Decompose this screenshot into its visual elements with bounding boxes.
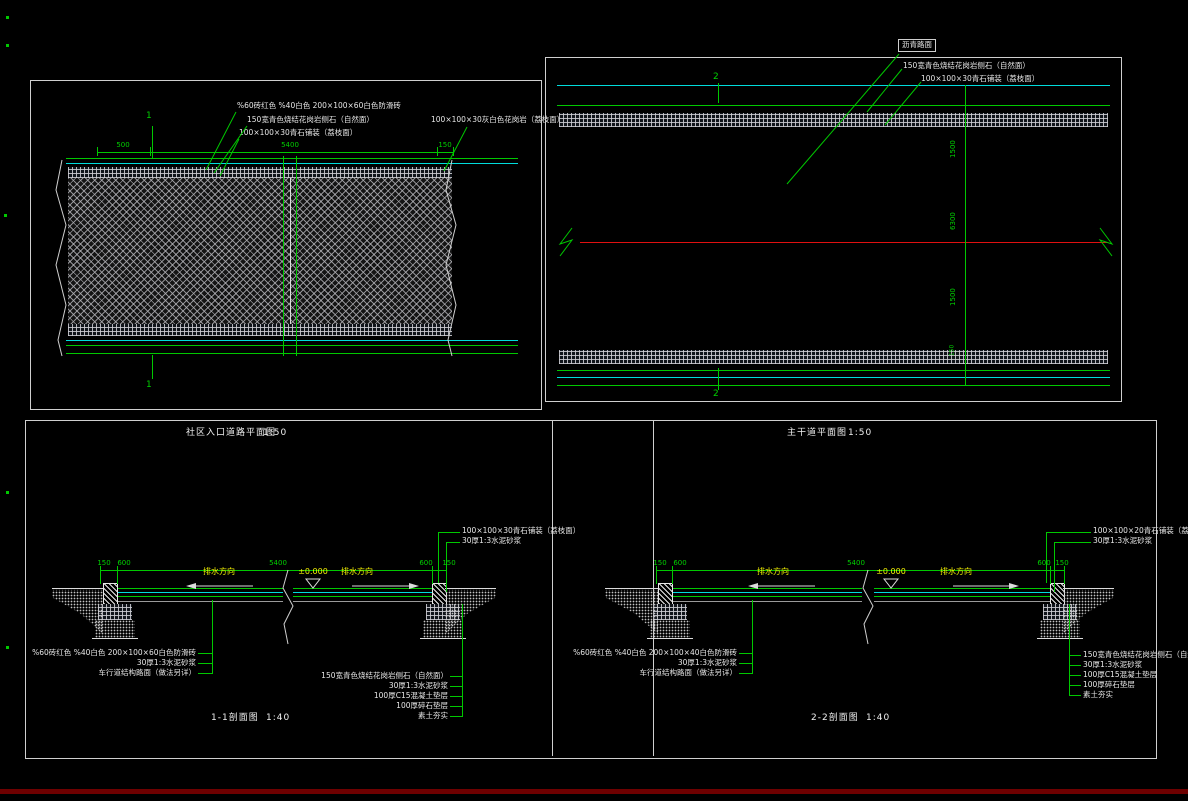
leader-line [1069, 665, 1081, 666]
dim-label: 150 [1055, 559, 1068, 567]
surface-line [293, 588, 432, 589]
material-label: 素土夯实 [1083, 691, 1113, 700]
surface-line [293, 596, 432, 597]
material-label: 100厚C15混凝土垫层 [1083, 671, 1157, 680]
leader-line [438, 532, 460, 533]
leader-line [1069, 604, 1070, 696]
curb-concrete-bed [653, 604, 687, 620]
structure-line [874, 601, 1050, 602]
surface-line [874, 588, 1050, 589]
material-label: 素土夯实 [418, 712, 448, 721]
road-edge-line [557, 370, 1110, 371]
dim-tick [97, 147, 98, 156]
joint-line [290, 178, 291, 324]
road-edge-line [66, 158, 518, 159]
dim-label: 5400 [847, 559, 865, 567]
surface-line [672, 588, 862, 589]
material-label: 100×100×30青石铺装（荔枝面） [239, 129, 357, 138]
joint-line [283, 156, 284, 356]
material-label: 100厚碎石垫层 [1083, 681, 1135, 690]
curb-stone [1050, 583, 1065, 605]
artifact-dot [6, 646, 9, 649]
section-title: 1-1剖面图 [211, 713, 259, 723]
dim-label: 5400 [281, 141, 299, 149]
flow-direction-label: 排水方向 [757, 567, 789, 576]
dim-label: 150 [97, 559, 110, 567]
leader-line [739, 653, 752, 654]
section-cut-tick [152, 126, 153, 158]
frame-divider [552, 421, 553, 756]
dim-tick [656, 566, 657, 584]
leader-line [1069, 695, 1081, 696]
road-edge-line [66, 163, 518, 164]
dim-tick [1050, 566, 1051, 584]
road-edge-line [66, 345, 518, 346]
leader-line [450, 706, 462, 707]
section-cut-tick [718, 368, 719, 390]
dim-tick [117, 566, 118, 584]
plan-scale: 1:50 [263, 428, 287, 438]
dim-label: 5400 [269, 559, 287, 567]
leader-line [450, 686, 462, 687]
joint-line [296, 156, 297, 356]
dim-tick [100, 566, 101, 584]
dim-tick [672, 566, 673, 584]
leader-line [1054, 542, 1091, 543]
ground-line [52, 588, 103, 589]
dim-label: 6300 [949, 204, 957, 238]
dim-label: 600 [117, 559, 130, 567]
section-cut-tick [152, 355, 153, 379]
section-mark-label: 1 [146, 111, 152, 121]
plan-scale: 1:50 [848, 428, 872, 438]
dim-label: 1500 [949, 280, 957, 314]
section-mark-label: 2 [713, 389, 719, 399]
material-label: 30厚1:3水泥砂浆 [678, 659, 737, 668]
cad-drawing-canvas[interactable]: 500 5400 150 1 1 %60砖红色 %40白色 200×100×60… [0, 0, 1188, 801]
level-label: ±0.000 [298, 567, 328, 576]
leader-line [450, 716, 462, 717]
material-label: 150宽青色烧结花岗岩侧石（自然面） [247, 116, 374, 125]
material-label: 100×100×30青石铺装（荔枝面） [921, 75, 1039, 84]
dim-label: 600 [419, 559, 432, 567]
section-mark-label: 2 [713, 72, 719, 82]
section-cut-tick [718, 83, 719, 103]
material-label: 100×100×20青石铺装（荔枝面） [1093, 527, 1188, 536]
material-label: %60砖红色 %40白色 200×100×40白色防滑砖 [573, 649, 737, 658]
flow-direction-label: 排水方向 [341, 567, 373, 576]
leader-line [1054, 542, 1055, 592]
structure-line [672, 601, 862, 602]
level-label: ±0.000 [876, 567, 906, 576]
dim-label: 150 [442, 559, 455, 567]
surface-line [117, 588, 283, 589]
road-edge-line [557, 377, 1110, 378]
leader-line [1069, 675, 1081, 676]
material-label: %60砖红色 %40白色 200×100×60白色防滑砖 [32, 649, 196, 658]
curb-stone [103, 583, 118, 605]
dim-tick [1064, 566, 1065, 584]
material-label: 100×100×30青石铺装（荔枝面） [462, 527, 580, 536]
ground-line [605, 588, 658, 589]
dimension-line [656, 570, 1064, 571]
leader-line [438, 532, 439, 583]
section-mark-label: 1 [146, 380, 152, 390]
dim-label: 150 [438, 141, 451, 149]
surface-line [117, 592, 283, 593]
leader-line [1046, 532, 1047, 583]
leader-line [446, 542, 447, 592]
leader-line [1069, 655, 1081, 656]
edge-paving-band [68, 167, 452, 178]
leader-line [450, 676, 462, 677]
material-label: 30厚1:3水泥砂浆 [137, 659, 196, 668]
dimension-line [100, 570, 446, 571]
surface-line [874, 592, 1050, 593]
dim-tick [150, 147, 151, 156]
structure-line [117, 601, 283, 602]
dim-label: 600 [673, 559, 686, 567]
material-label: 150宽青色烧结花岗岩侧石（自然面） [1083, 651, 1188, 660]
material-label: 150宽青色烧结花岗岩侧石（自然面） [321, 672, 448, 681]
surface-line [672, 596, 862, 597]
bed-base-line [420, 638, 466, 639]
dim-label: 150 [950, 333, 957, 367]
section-scale: 1:40 [866, 713, 890, 723]
surface-line [672, 592, 862, 593]
dimension-line [965, 85, 966, 385]
edge-paving-band [68, 324, 452, 336]
section-scale: 1:40 [266, 713, 290, 723]
leader-line [198, 653, 212, 654]
leader-line [739, 673, 752, 674]
leader-line [212, 600, 213, 674]
road-centerline [580, 242, 1108, 243]
road-edge-line [66, 353, 518, 354]
bed-base-line [647, 638, 693, 639]
leader-line [739, 663, 752, 664]
ground-line [445, 588, 496, 589]
material-label: 车行道结构路面（做法另详） [99, 669, 197, 678]
leader-line [462, 604, 463, 717]
sections-frame [25, 420, 1157, 759]
section-title: 2-2剖面图 [811, 713, 859, 723]
leader-line [450, 696, 462, 697]
leader-line [1069, 685, 1081, 686]
leader-line [1046, 532, 1091, 533]
road-edge-line [66, 340, 518, 341]
dim-label: 1500 [949, 132, 957, 166]
material-label: 150宽青色烧结花岗岩侧石（自然面） [903, 62, 1030, 71]
road-edge-line [557, 105, 1110, 106]
edge-paving-band [559, 113, 1108, 127]
edge-paving-band [559, 350, 1108, 364]
flow-direction-label: 排水方向 [203, 567, 235, 576]
flow-direction-label: 排水方向 [940, 567, 972, 576]
material-label: 100厚C15混凝土垫层 [374, 692, 448, 701]
dim-label: 600 [1037, 559, 1050, 567]
material-label: 30厚1:3水泥砂浆 [1093, 537, 1152, 546]
artifact-dot [6, 44, 9, 47]
curb-stone [432, 583, 447, 605]
leader-line [446, 542, 460, 543]
leader-line [198, 673, 212, 674]
material-label: 100厚碎石垫层 [396, 702, 448, 711]
artifact-dot [6, 16, 9, 19]
curb-concrete-bed [98, 604, 132, 620]
material-label: %60砖红色 %40白色 200×100×60白色防滑砖 [237, 102, 401, 111]
material-label: 30厚1:3水泥砂浆 [1083, 661, 1142, 670]
road-edge-line [557, 85, 1110, 86]
bed-base-line [92, 638, 138, 639]
paver-field [68, 178, 452, 324]
surface-line [117, 596, 283, 597]
material-label: 30厚1:3水泥砂浆 [389, 682, 448, 691]
leader-line [198, 663, 212, 664]
ground-line [1063, 588, 1114, 589]
dim-tick [453, 147, 454, 156]
dim-tick [432, 566, 433, 584]
bed-base-line [1037, 638, 1083, 639]
curb-stone [658, 583, 673, 605]
surface-line [874, 596, 1050, 597]
road-edge-line [557, 385, 1110, 386]
surface-line [293, 592, 432, 593]
material-label: 30厚1:3水泥砂浆 [462, 537, 521, 546]
dim-label: 150 [653, 559, 666, 567]
asphalt-label: 沥青路面 [898, 39, 936, 52]
artifact-dot [4, 214, 7, 217]
dim-label: 500 [116, 141, 129, 149]
bottom-bar [0, 789, 1188, 794]
plan-title: 主干道平面图 [787, 428, 847, 438]
leader-line [752, 600, 753, 674]
structure-line [293, 601, 432, 602]
artifact-dot [6, 491, 9, 494]
material-label: 车行道结构路面（做法另详） [640, 669, 738, 678]
